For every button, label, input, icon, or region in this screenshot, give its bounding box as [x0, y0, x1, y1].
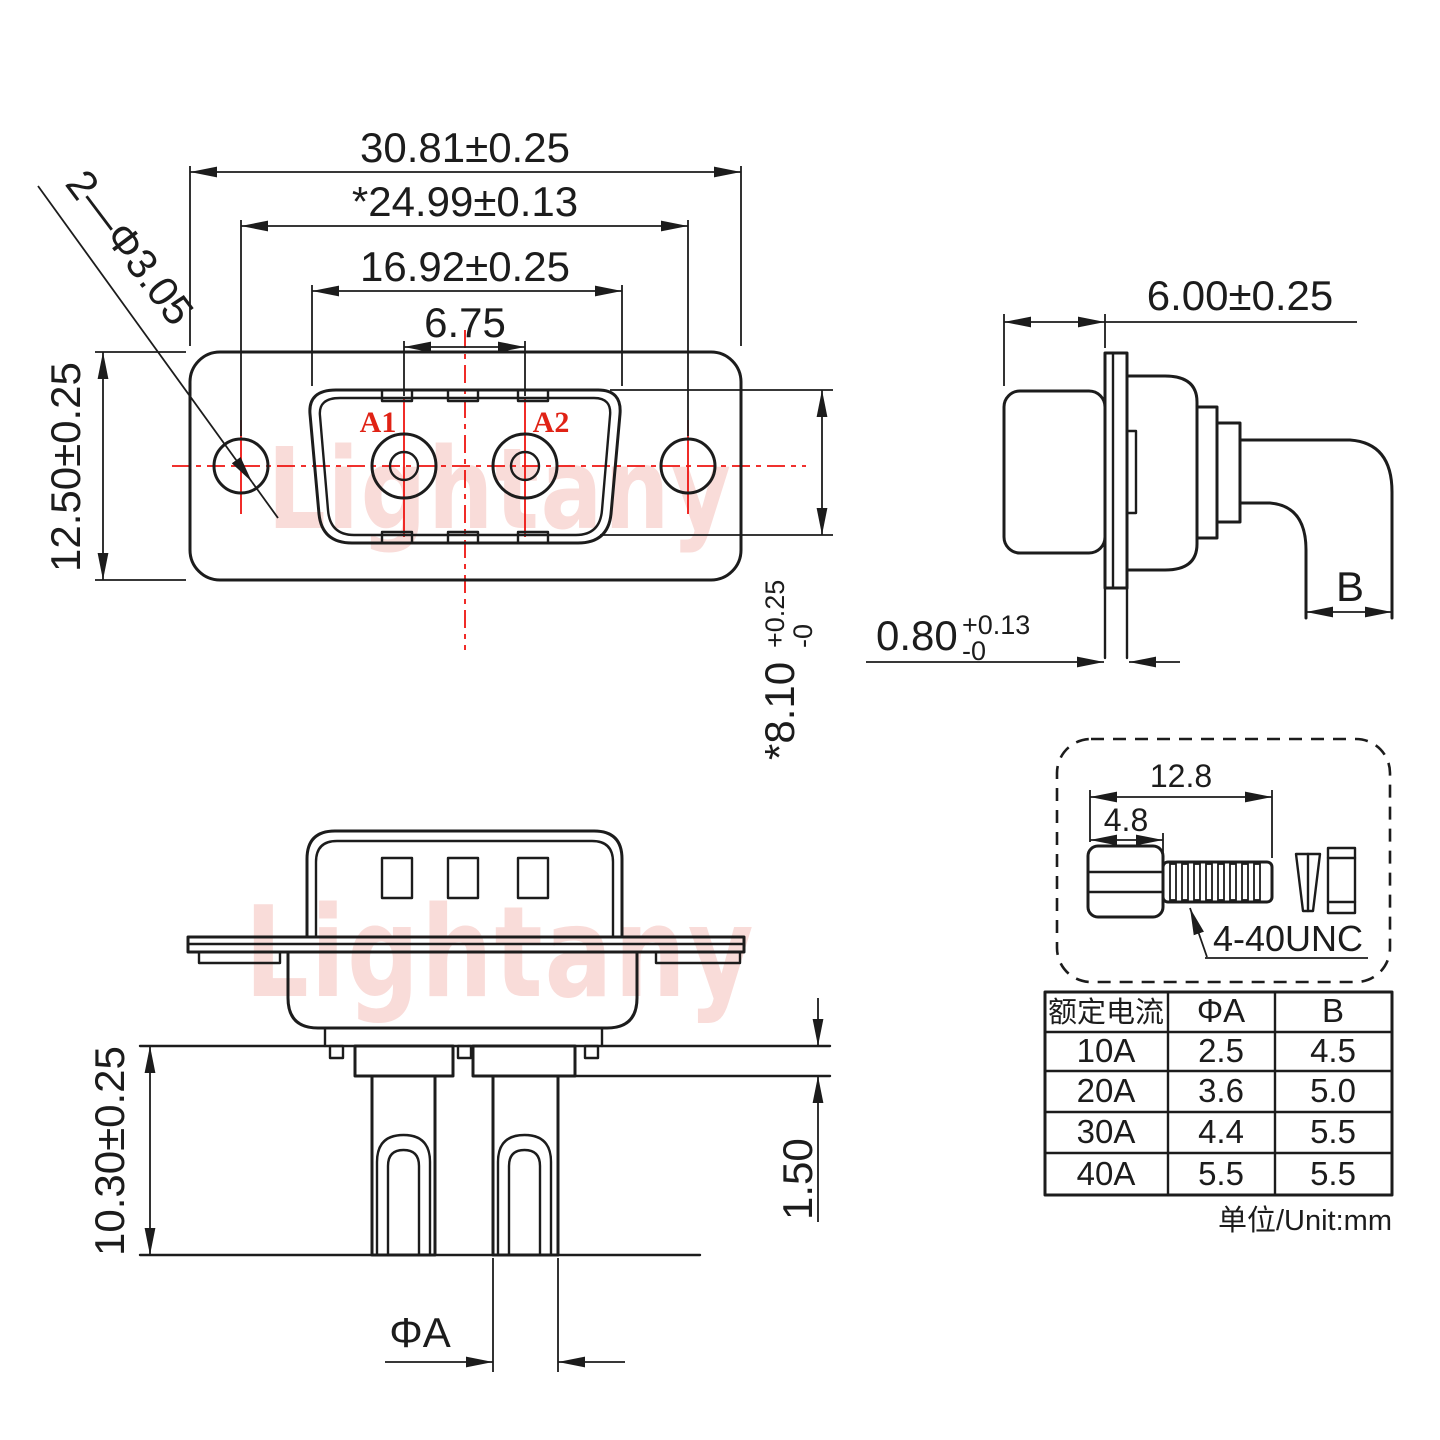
table-cell: 4.5	[1310, 1032, 1356, 1069]
pin-right	[493, 1076, 558, 1255]
solder-block-right	[473, 1046, 575, 1076]
dim-flange-thickness: 0.80 +0.13 -0	[876, 610, 1030, 666]
side-contact-inner	[1240, 503, 1306, 618]
spec-table: 额定电流 ΦA B 10A 2.5 4.5 20A 3.6 5.0 30A 4.…	[1045, 992, 1392, 1237]
table-cell: 30A	[1077, 1113, 1136, 1150]
dim-screw-head: 4.8	[1104, 802, 1148, 838]
side-view: 6.00±0.25 0.80 +0.13 -0 B	[866, 272, 1392, 666]
dim-shell-height-value: *8.10	[756, 662, 803, 760]
dim-shell-width: 16.92±0.25	[360, 243, 570, 290]
screw-head	[1088, 846, 1163, 917]
table-cell: 3.6	[1198, 1072, 1244, 1109]
screw-threads	[1170, 864, 1260, 900]
solder-cups	[377, 1135, 551, 1255]
screw-dimensions: 12.8 4.8 4-40UNC	[1090, 758, 1368, 959]
table-cell: 4.4	[1198, 1113, 1244, 1150]
table-cell: 10A	[1077, 1032, 1136, 1069]
solder-block-left	[355, 1046, 453, 1076]
dim-pitch: 6.75	[424, 299, 506, 346]
screw-detail: 12.8 4.8 4-40UNC	[1057, 739, 1390, 982]
dim-shell-height-plus: +0.25	[760, 580, 790, 648]
unit-note: 单位/Unit:mm	[1218, 1204, 1392, 1237]
dim-hole-span: *24.99±0.13	[352, 178, 578, 225]
pin-label-a1: A1	[360, 406, 397, 439]
screw-geometry	[1088, 846, 1355, 917]
table-cell: 5.5	[1198, 1155, 1244, 1192]
dim-standoff: 1.50	[774, 1138, 821, 1220]
side-flange-plate	[1105, 353, 1127, 588]
dim-tail-width: B	[1336, 563, 1364, 610]
side-step1	[1197, 407, 1217, 538]
side-body	[1004, 391, 1105, 553]
table-row-40a: 40A 5.5 5.5	[1077, 1155, 1356, 1192]
table-cell: 40A	[1077, 1155, 1136, 1192]
dim-screw-length: 12.8	[1150, 758, 1212, 794]
dim-height: 12.50±0.25	[42, 362, 89, 572]
dim-flange-minus: -0	[962, 636, 986, 666]
dim-pin-diameter: ΦA	[389, 1309, 451, 1356]
table-header-b: B	[1322, 992, 1344, 1029]
dim-pin-length: 10.30±0.25	[86, 1046, 133, 1256]
bottom-base-tabs	[330, 1046, 598, 1058]
table-header-current: 额定电流	[1048, 996, 1164, 1029]
dim-flange-value: 0.80	[876, 612, 958, 659]
dim-shell-height: *8.10 +0.25 -0	[756, 580, 818, 760]
table-cell: 20A	[1077, 1072, 1136, 1109]
table-cell: 5.0	[1310, 1072, 1356, 1109]
side-step2	[1217, 423, 1240, 522]
table-header-dia: ΦA	[1197, 992, 1245, 1029]
dim-shell-height-minus: -0	[788, 624, 818, 648]
table-row-30a: 30A 4.4 5.5	[1077, 1113, 1356, 1150]
side-contact-outer	[1240, 440, 1392, 618]
table-row-20a: 20A 3.6 5.0	[1077, 1072, 1356, 1109]
drawing-canvas: Lightany Lightany	[0, 0, 1440, 1440]
pin-left	[372, 1076, 435, 1255]
dim-depth: 6.00±0.25	[1147, 272, 1334, 319]
thread-label: 4-40UNC	[1213, 918, 1363, 959]
screw-small-parts	[1296, 848, 1355, 913]
connector-drawing: Lightany Lightany	[0, 0, 1440, 1440]
pin-label-a2: A2	[533, 406, 570, 439]
table-row-10a: 10A 2.5 4.5	[1077, 1032, 1356, 1069]
dim-outer-width: 30.81±0.25	[360, 124, 570, 171]
dim-mount-holes: 2—Φ3.05	[57, 161, 203, 334]
table-cell: 2.5	[1198, 1032, 1244, 1069]
side-dimensions: 6.00±0.25 0.80 +0.13 -0 B	[866, 272, 1392, 666]
side-insulator	[1127, 376, 1197, 570]
table-cell: 5.5	[1310, 1155, 1356, 1192]
table-cell: 5.5	[1310, 1113, 1356, 1150]
